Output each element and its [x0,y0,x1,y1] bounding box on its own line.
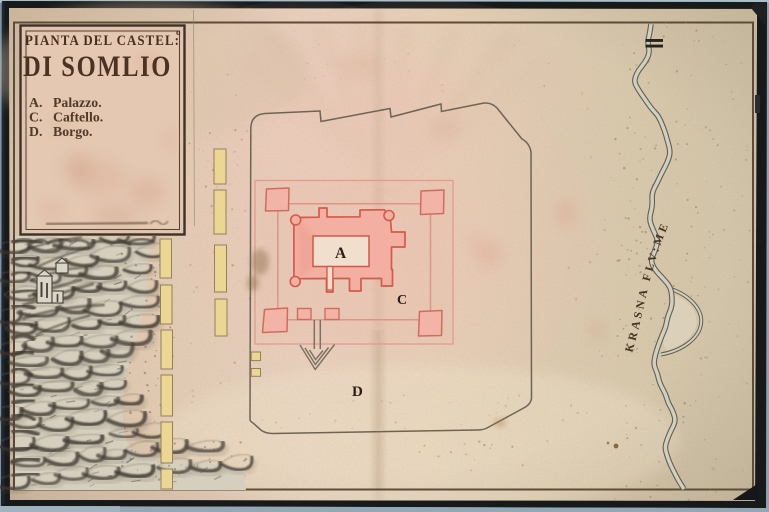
svg-text:Palazzo.: Palazzo. [53,95,102,110]
svg-text:DI SOMLIO: DI SOMLIO [23,50,172,83]
svg-text:D: D [352,384,363,400]
svg-text:PIANTA DEL CASTEL:: PIANTA DEL CASTEL: [25,33,180,49]
svg-text:A: A [335,245,347,262]
svg-text:A.: A. [29,95,42,110]
svg-text:Borgo.: Borgo. [53,124,92,139]
svg-text:C.: C. [29,110,42,125]
svg-text:Caftello.: Caftello. [53,110,103,125]
svg-text:D.: D. [29,124,42,139]
svg-text:o: o [176,27,181,37]
svg-text:C: C [397,293,407,308]
